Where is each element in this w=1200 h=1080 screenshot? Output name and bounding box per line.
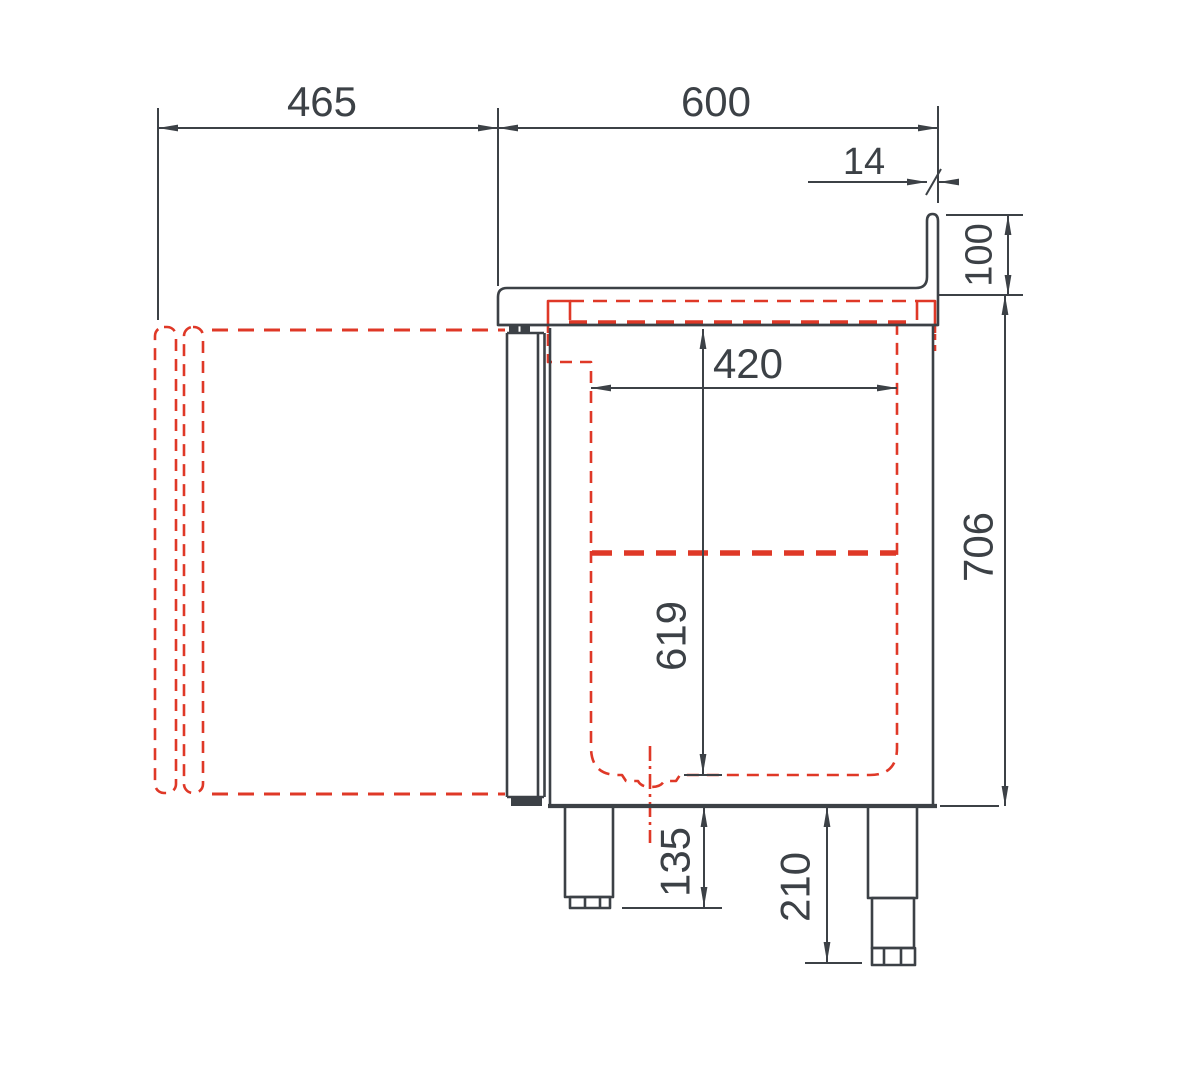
- dim-label-body-height: 706: [955, 512, 1002, 582]
- worktop-and-splashback: [498, 214, 938, 325]
- rear-leg-body: [868, 806, 917, 898]
- open-door-panel-outer: [155, 327, 176, 793]
- rear-leg-extension: [872, 898, 914, 948]
- dim-label-foot-height-front: 135: [652, 827, 699, 897]
- rear-leg-foot: [872, 948, 915, 965]
- dim-label-front-clearance: 465: [287, 78, 357, 125]
- dim-label-splashback-height: 100: [958, 223, 1000, 286]
- dim-label-interior-height: 619: [648, 601, 695, 671]
- technical-drawing-svg: 465 600 14 100 706 420 619 135 210: [0, 0, 1200, 1080]
- front-leg-body: [565, 806, 613, 897]
- dim-label-foot-height-rear: 210: [772, 852, 819, 922]
- dim-label-splashback-thickness: 14: [843, 141, 885, 183]
- front-leg-foot: [570, 897, 610, 908]
- dim-label-interior-depth: 420: [713, 340, 783, 387]
- top-hinge-knuckle-b: [521, 326, 531, 334]
- open-door-panel-inner: [184, 327, 203, 793]
- interior-liner-outline: [548, 326, 897, 787]
- technical-drawing-page: 465 600 14 100 706 420 619 135 210: [0, 0, 1200, 1080]
- cabinet-group: [498, 214, 938, 965]
- phantom-open-door-group: [155, 327, 505, 794]
- dim-label-overall-depth: 600: [681, 78, 751, 125]
- bottom-hinge-block: [511, 797, 542, 806]
- top-hinge-knuckle-a: [509, 326, 519, 334]
